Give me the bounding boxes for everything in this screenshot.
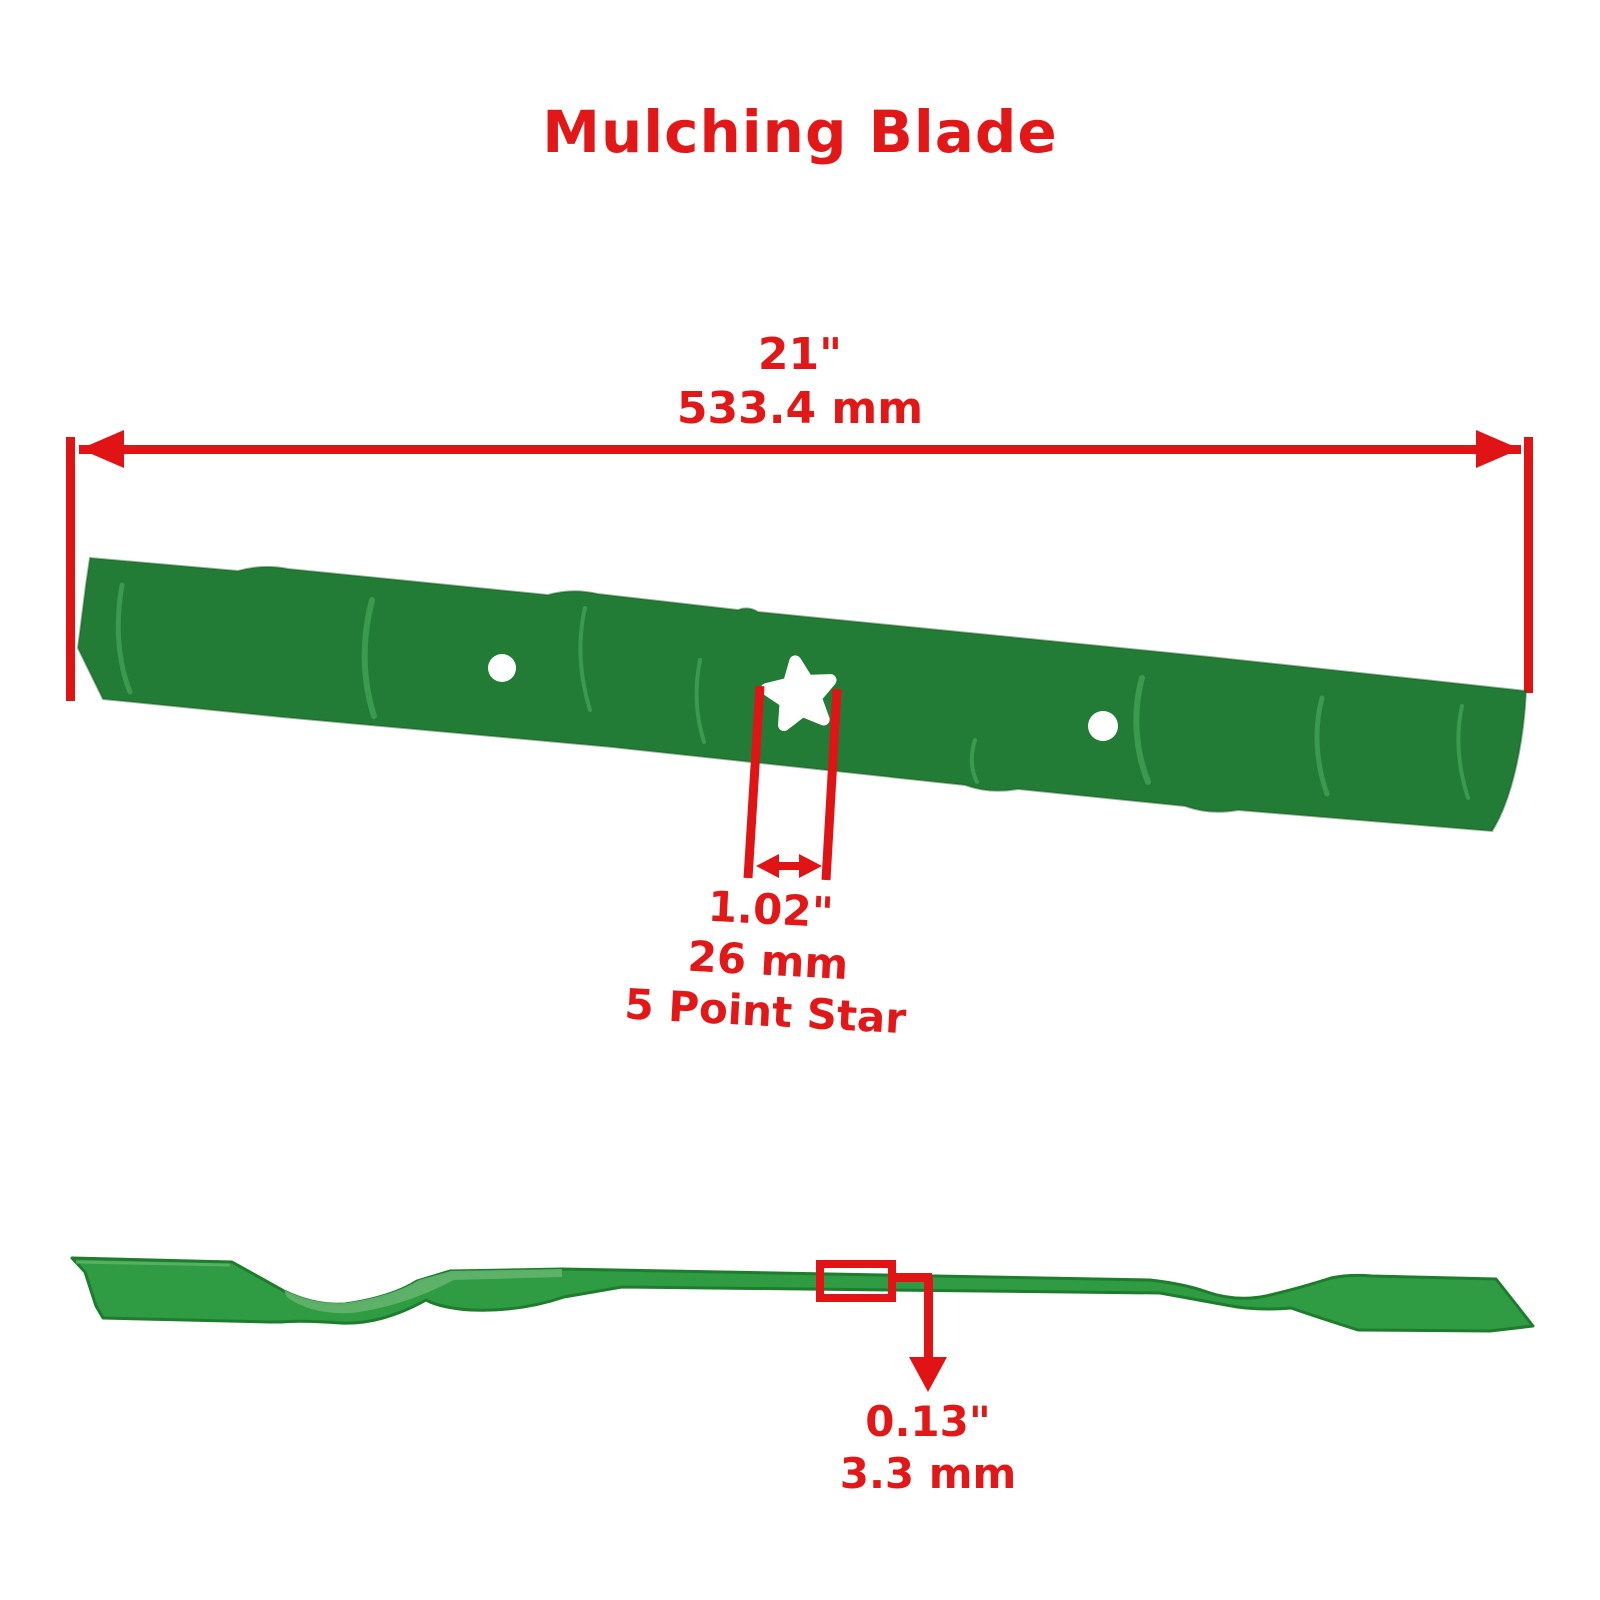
blade-side-view — [72, 1258, 1533, 1331]
blade-top-view — [78, 558, 1526, 831]
page-title: Mulching Blade — [0, 98, 1600, 166]
length-dimension-label: 21" 533.4 mm — [550, 328, 1050, 436]
star-arrow-left-icon — [756, 854, 779, 878]
center-hole-dimension-label: 1.02" 26 mm 5 Point Star — [514, 871, 1021, 1050]
left-extension-line — [66, 437, 75, 701]
right-extension-line — [1524, 437, 1533, 693]
arrow-left-icon — [80, 430, 124, 468]
arrow-right-icon — [1476, 430, 1520, 468]
thickness-mm-label: 3.3 mm — [678, 1448, 1178, 1500]
thickness-leader-vertical — [924, 1277, 933, 1362]
thickness-inches-label: 0.13" — [678, 1396, 1178, 1448]
mounting-hole-left — [488, 654, 516, 682]
arrow-down-icon — [909, 1357, 947, 1392]
length-mm-label: 533.4 mm — [550, 382, 1050, 436]
thickness-dimension-label: 0.13" 3.3 mm — [678, 1396, 1178, 1500]
length-dimension-line — [79, 445, 1521, 454]
star-arrow-right-icon — [799, 854, 822, 878]
length-inches-label: 21" — [550, 328, 1050, 382]
mounting-hole-right — [1088, 711, 1118, 741]
diagram-graphics — [0, 0, 1600, 1600]
product-diagram-canvas: Mulching Blade 21" 533.4 mm 1.02" 26 mm … — [0, 0, 1600, 1600]
